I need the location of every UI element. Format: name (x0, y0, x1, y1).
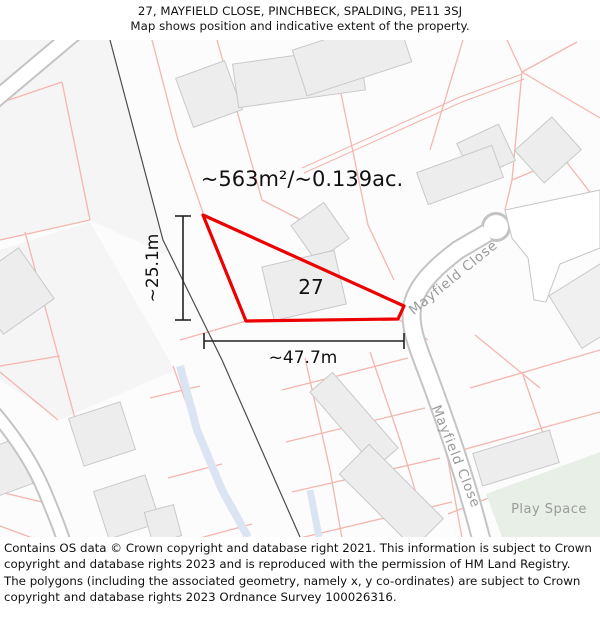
height-dimension-label: ~25.1m (143, 234, 163, 303)
play-space-label: Play Space (511, 502, 587, 517)
map-header: 27, MAYFIELD CLOSE, PINCHBECK, SPALDING,… (0, 0, 600, 40)
map-svg: ~563m²/~0.139ac. 27 ~25.1m ~47.7m Mayfie… (0, 40, 600, 537)
drain-stream (310, 490, 319, 537)
width-dimension-label: ~47.7m (269, 348, 338, 368)
building (515, 117, 582, 183)
drain-stream (180, 366, 248, 537)
dimension-width (204, 333, 404, 349)
map-canvas: ~563m²/~0.139ac. 27 ~25.1m ~47.7m Mayfie… (0, 40, 600, 537)
building (339, 444, 443, 537)
parcel-tint (0, 40, 175, 420)
page-title: 27, MAYFIELD CLOSE, PINCHBECK, SPALDING,… (0, 3, 600, 19)
area-label: ~563m²/~0.139ac. (201, 167, 403, 191)
building (291, 203, 349, 262)
plot-number-label: 27 (298, 275, 323, 299)
copyright-attribution: Contains OS data © Crown copyright and d… (0, 537, 600, 625)
drains (180, 366, 319, 537)
page-subtitle: Map shows position and indicative extent… (0, 19, 600, 34)
building (176, 61, 243, 128)
building (417, 145, 504, 204)
building (310, 372, 398, 467)
